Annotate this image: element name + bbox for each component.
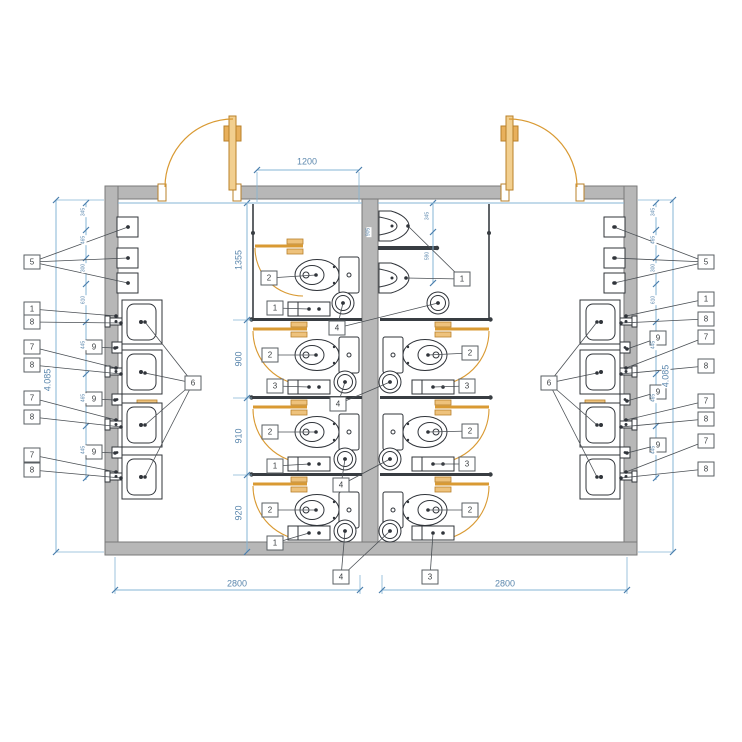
urinal-screen bbox=[378, 246, 436, 250]
door-hinge bbox=[501, 126, 506, 141]
door-swing-arc bbox=[165, 119, 233, 187]
entrance-door-left bbox=[158, 116, 241, 201]
door-hinge bbox=[513, 126, 518, 141]
floor-plan-drawing bbox=[0, 0, 742, 742]
floor-plan-canvas: 5187878789996222213114444122233351878787… bbox=[0, 0, 742, 742]
walls bbox=[105, 186, 637, 555]
entrance-door-right bbox=[501, 116, 584, 201]
wall-accessory bbox=[620, 342, 630, 353]
door-hinge bbox=[236, 126, 241, 141]
door-leaf bbox=[229, 116, 236, 190]
door-swing-arc bbox=[509, 119, 577, 187]
urinal bbox=[379, 211, 409, 241]
door-hinge bbox=[224, 126, 229, 141]
toilet bbox=[295, 257, 359, 293]
toilet bbox=[383, 337, 447, 373]
top-wall-center-segment bbox=[241, 186, 501, 199]
stall-door bbox=[255, 239, 303, 296]
central-wall bbox=[362, 199, 378, 542]
door-leaf bbox=[506, 116, 513, 190]
wall-accessory bbox=[620, 394, 630, 405]
